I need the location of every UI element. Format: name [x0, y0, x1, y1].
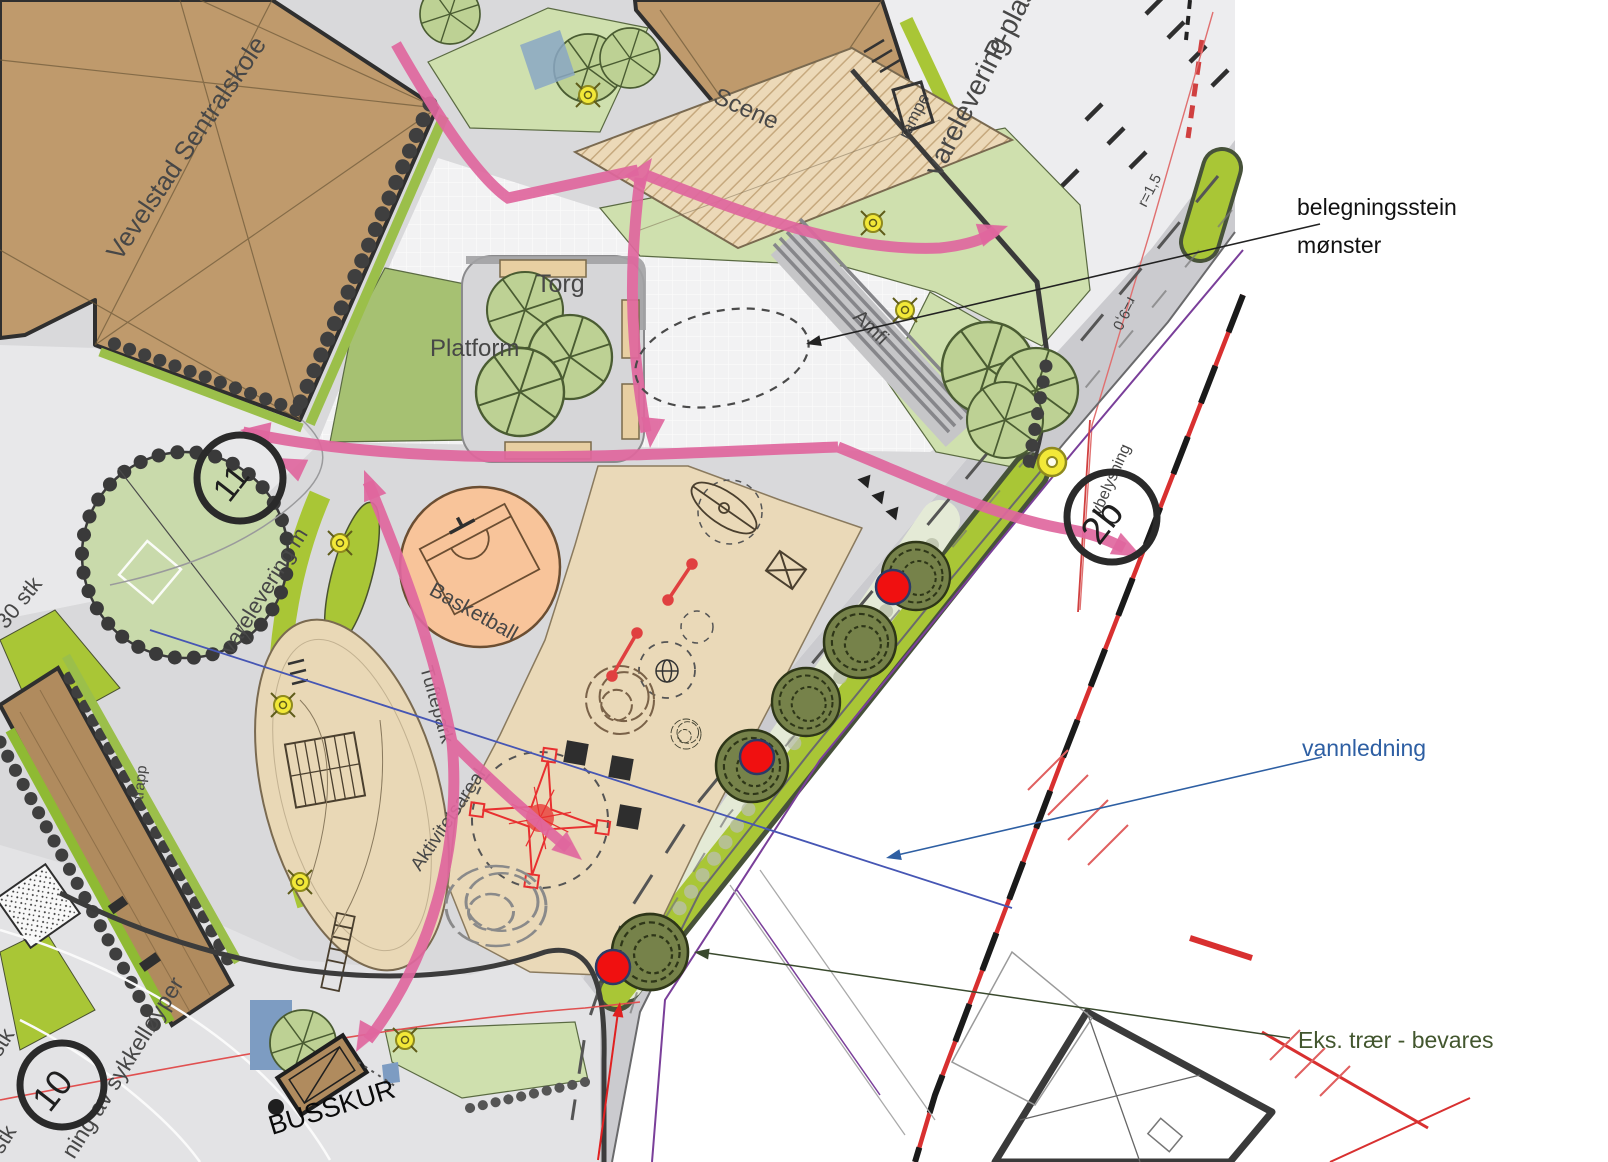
- landscape-plan-svg: Vevelstad Sentralskole Scene vareleverin…: [0, 0, 1608, 1162]
- large-lamp: [1038, 448, 1066, 476]
- label-torg: Torg: [536, 270, 585, 298]
- annotation-paving-line2: mønster: [1297, 232, 1382, 258]
- label-platform: Platform: [430, 335, 519, 362]
- annotation-water-text: vannledning: [1302, 735, 1426, 761]
- tree-group-left: [82, 452, 288, 658]
- annotation-paving-line1: belegningsstein: [1297, 194, 1457, 220]
- annotation-trees-text: Eks. trær - bevares: [1298, 1027, 1494, 1053]
- label-trapp: trapp: [130, 765, 150, 801]
- landscape-plan-page: Vevelstad Sentralskole Scene vareleverin…: [0, 0, 1608, 1162]
